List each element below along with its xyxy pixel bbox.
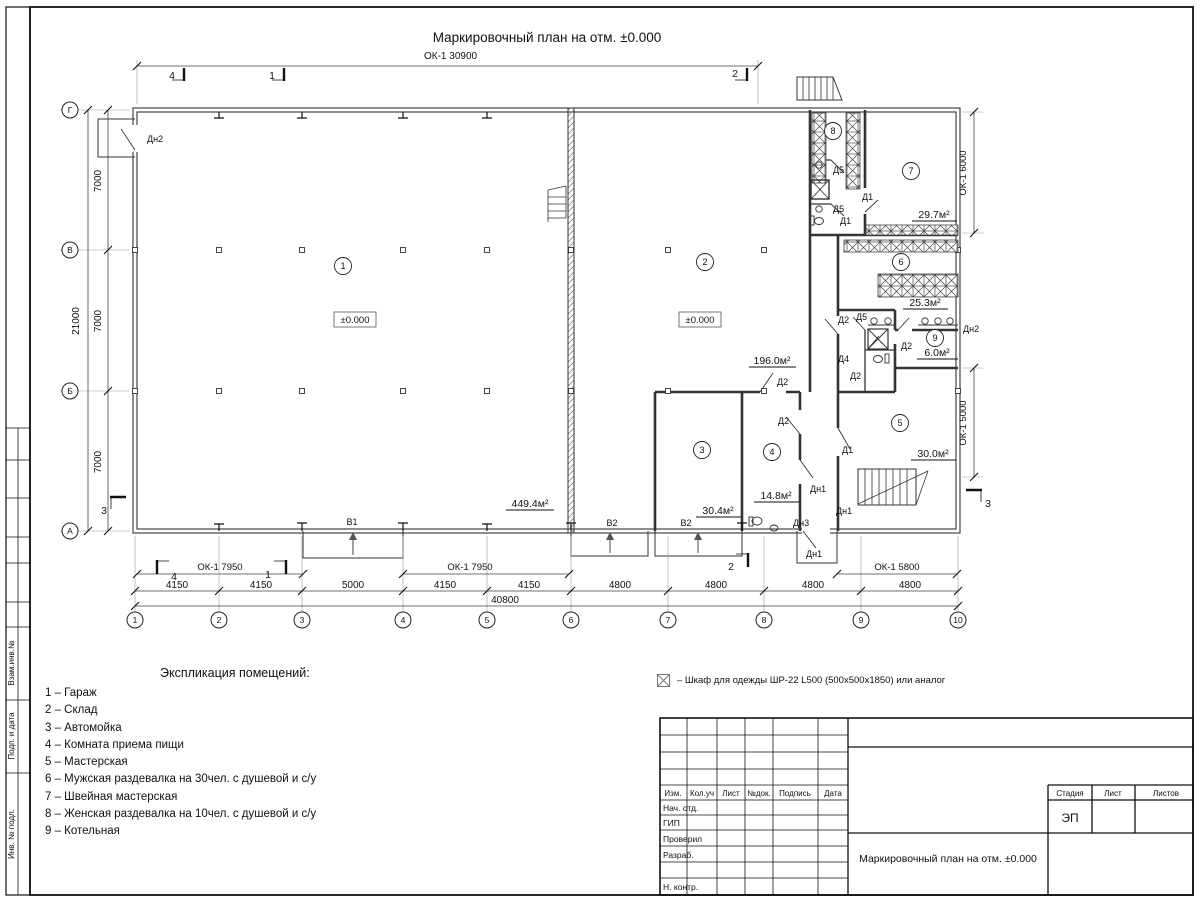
section-3-right: 3 (985, 498, 991, 510)
tb-row-gip: ГИП (663, 818, 680, 828)
door-dn3: Дн3 (793, 518, 809, 528)
tb-row-razrab: Разраб. (663, 850, 694, 860)
frame-labels: Взам.инв.№ Подп. и дата Инв. № подл. (7, 640, 16, 859)
tb-row-nkontr: Н. контр. (663, 882, 698, 892)
door-d5-1: Д5 (833, 165, 844, 175)
axis-col-8: 8 (762, 615, 767, 625)
title-block (660, 718, 1193, 895)
door-d5-3: Д5 (856, 312, 867, 322)
room-9-number: 9 (932, 333, 937, 343)
room-6-number: 6 (898, 257, 903, 267)
dim-7000-2: 7000 (93, 309, 104, 332)
door-d1-2: Д1 (840, 216, 851, 226)
dimension-lines (88, 66, 974, 606)
legend-item-1: 1 – Гараж (45, 685, 505, 702)
room-5-area: 30.0м² (917, 448, 949, 460)
axis-col-6: 6 (569, 615, 574, 625)
dim-4150-4: 4150 (518, 580, 541, 591)
axis-col-5: 5 (485, 615, 490, 625)
frame-label-inv: Инв. № подл. (7, 809, 16, 859)
legend-title: Экспликация помещений: (160, 666, 505, 680)
axis-col-7: 7 (666, 615, 671, 625)
tb-sheet-label: Лист (1104, 789, 1122, 798)
gate-v2-2: В2 (680, 518, 691, 528)
grid-bubbles (62, 102, 966, 628)
tb-col-ndok: №док. (747, 789, 770, 798)
door-dn2-right: Дн2 (963, 324, 979, 334)
axis-row-g: Г (68, 105, 73, 115)
door-dn1-1: Дн1 (810, 484, 826, 494)
room-2-level: ±0.000 (686, 315, 715, 326)
door-dn1-3: Дн1 (806, 549, 822, 559)
room-1-area: 449.4м² (512, 498, 549, 510)
frame-label-vzam: Взам.инв.№ (7, 640, 16, 686)
legend-item-8: 8 – Женская раздевалка на 10чел. с душев… (45, 806, 505, 823)
tb-stage-label: Стадия (1056, 789, 1083, 798)
sheet-title: Маркировочный план на отм. ±0.000 (433, 30, 662, 45)
door-leaves (121, 129, 909, 548)
dim-4800-1: 4800 (609, 580, 632, 591)
legend-item-3: 3 – Автомойка (45, 720, 505, 737)
tb-row-proveril: Проверил (663, 834, 702, 844)
door-d1-1: Д1 (862, 192, 873, 202)
window-dim-rt: ОК-1 6000 (958, 150, 969, 195)
door-d2-5: Д2 (778, 416, 789, 426)
tb-col-koluch: Кол.уч (690, 789, 714, 798)
door-d1-3: Д1 (842, 445, 853, 455)
dim-4800-4: 4800 (899, 580, 922, 591)
dim-4800-2: 4800 (705, 580, 728, 591)
window-dim-left: ОК-1 7950 (197, 562, 242, 573)
wardrobe-note-text: – Шкаф для одежды ШР-22 L500 (500х500х18… (677, 675, 945, 686)
window-dim-mid: ОК-1 7950 (447, 562, 492, 573)
tb-col-data: Дата (824, 789, 842, 798)
door-d2-1: Д2 (838, 315, 849, 325)
room-3-number: 3 (699, 445, 704, 455)
dim-4800-3: 4800 (802, 580, 825, 591)
section-2-bottom: 2 (728, 561, 734, 573)
window-dim-rb: ОК-1 5000 (958, 400, 969, 445)
door-d2-4: Д2 (777, 377, 788, 387)
section-3-left: 3 (101, 505, 107, 517)
wall-column-marks (214, 112, 747, 531)
axis-col-3: 3 (300, 615, 305, 625)
dim-7000-1: 7000 (93, 169, 104, 192)
dim-7000-3: 7000 (93, 450, 104, 473)
axis-row-v: В (67, 245, 73, 255)
axis-col-10: 10 (953, 615, 963, 625)
legend-item-6: 6 – Мужская раздевалка на 30чел. с душев… (45, 771, 505, 788)
title-block-text: Изм. Кол.уч Лист №док. Подпись Дата Нач.… (663, 789, 1179, 892)
axis-col-4: 4 (401, 615, 406, 625)
tb-col-podpis: Подпись (779, 789, 811, 798)
section-1-top: 1 (269, 70, 275, 82)
door-dn2-topleft: Дн2 (147, 134, 163, 144)
legend-item-7: 7 – Швейная мастерская (45, 789, 505, 806)
section-4-top: 4 (169, 70, 175, 82)
section-2-top: 2 (732, 68, 738, 80)
tb-row-nachotd: Нач. отд. (663, 803, 698, 813)
frame-label-podp: Подп. и дата (7, 712, 16, 760)
room-9-area: 6.0м² (924, 347, 950, 359)
door-dn1-2: Дн1 (836, 506, 852, 516)
room-legend: Экспликация помещений: 1 – Гараж 2 – Скл… (45, 666, 505, 841)
axis-row-a: А (67, 526, 73, 536)
legend-item-5: 5 – Мастерская (45, 754, 505, 771)
tb-stage-value: ЭП (1061, 811, 1078, 825)
dim-21000: 21000 (71, 307, 82, 335)
gate-v2-1: В2 (606, 518, 617, 528)
legend-item-2: 2 – Склад (45, 702, 505, 719)
door-d5-2: Д5 (833, 204, 844, 214)
dim-4150-1: 4150 (166, 580, 189, 591)
door-d2-3: Д2 (850, 371, 861, 381)
axis-row-b: Б (67, 386, 73, 396)
room-1-number: 1 (340, 261, 345, 271)
tb-col-list: Лист (722, 789, 740, 798)
porches-gates (98, 119, 837, 563)
drawing-sheet: Взам.инв.№ Подп. и дата Инв. № подл. Мар… (0, 0, 1200, 900)
room-3-area: 30.4м² (702, 505, 734, 517)
dim-5000: 5000 (342, 580, 365, 591)
axis-col-2: 2 (217, 615, 222, 625)
room-1-level: ±0.000 (341, 315, 370, 326)
room-6-area: 25.3м² (909, 297, 941, 309)
stairs (548, 77, 928, 505)
dimension-ticks (84, 62, 978, 610)
tb-col-izm: Изм. (664, 789, 681, 798)
doorway-gap (131, 125, 139, 152)
dim-4150-2: 4150 (250, 580, 273, 591)
window-dim-right: ОК-1 5800 (874, 562, 919, 573)
legend-item-9: 9 – Котельная (45, 823, 505, 840)
room-7-area: 29.7м² (918, 209, 950, 221)
section-4-bottom: 4 (171, 571, 177, 583)
dim-total: 40800 (491, 595, 519, 606)
tb-doc-title: Маркировочный план на отм. ±0.000 (859, 853, 1037, 865)
room-2-area: 196.0м² (754, 355, 791, 367)
dim-4150-3: 4150 (434, 580, 457, 591)
axis-col-1: 1 (133, 615, 138, 625)
room-5-number: 5 (897, 418, 902, 428)
gate-v1: В1 (346, 517, 357, 527)
room-7-number: 7 (908, 166, 913, 176)
door-labels: Дн2 Дн2 Д5 Д5 Д5 Д1 Д1 Д1 Д2 Д2 Д2 Д2 Д2… (147, 134, 979, 559)
door-d4: Д4 (838, 354, 849, 364)
legend-item-4: 4 – Комната приема пищи (45, 737, 505, 754)
dimension-labels: 4150 4150 5000 4150 4150 4800 4800 4800 … (71, 150, 969, 606)
axis-col-9: 9 (859, 615, 864, 625)
section-1-bottom: 1 (265, 569, 271, 581)
room-2-number: 2 (702, 257, 707, 267)
wardrobe-note: – Шкаф для одежды ШР-22 L500 (500х500х18… (657, 674, 945, 687)
room-8-number: 8 (830, 126, 835, 136)
room-4-area: 14.8м² (760, 490, 792, 502)
top-window-dim: ОК-1 30900 (424, 51, 478, 62)
tb-sheets-label: Листов (1153, 789, 1179, 798)
room-4-number: 4 (769, 447, 774, 457)
wardrobe-icon (657, 674, 670, 687)
door-d2-2: Д2 (901, 341, 912, 351)
free-columns (133, 248, 961, 394)
